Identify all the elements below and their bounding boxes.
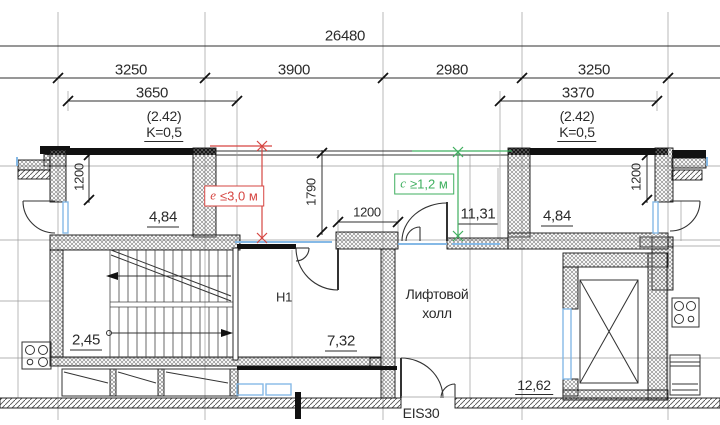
green-note-condition: ≥1,2 м [410, 176, 448, 191]
dim-grid-4-label: 3250 [578, 62, 610, 79]
dim-left-room-width-label: 1200 [72, 163, 87, 191]
dim-grid-1-label: 3250 [115, 62, 147, 79]
room-label-corridor: H1 [276, 290, 292, 305]
radiator [266, 384, 291, 395]
radiator [237, 384, 263, 395]
area-right-balcony: 4,84 [541, 208, 573, 225]
area-corridor: 7,32 [325, 333, 357, 350]
walls [0, 146, 720, 419]
green-note-box: c≥1,2 м [394, 174, 454, 195]
dim-mid-pier-label: 1200 [353, 205, 381, 220]
area-stairs: 2,45 [70, 332, 102, 349]
dim-left-parapet-label: 3650 [136, 85, 168, 102]
coefficient-left-value: (2.42) [147, 108, 182, 124]
door-rating-label: EIS30 [403, 405, 440, 421]
area-terrace: 11,31 [459, 206, 498, 223]
red-note-variable: e [210, 188, 216, 204]
stove-icon-left [22, 342, 51, 369]
dim-right-room-width-label: 1200 [629, 163, 644, 191]
dim-grid-2-label: 3900 [278, 62, 310, 79]
room-label-lift-lobby-2: холл [422, 305, 451, 321]
area-left-balcony: 4,84 [147, 209, 179, 226]
dim-right-parapet-label: 3370 [562, 85, 594, 102]
dim-total-label: 26480 [325, 28, 365, 45]
stove-icon-right [672, 298, 699, 327]
red-note-condition: ≤3,0 м [220, 188, 258, 203]
red-note-box: e≤3,0 м [204, 186, 264, 207]
staircase [106, 250, 233, 357]
coefficient-right-k: K=0,5 [557, 124, 596, 140]
floor-plan-stage: 26480 3250 3900 2980 3250 3650 3370 (2.4… [0, 0, 720, 425]
dim-grid-3-label: 2980 [436, 62, 468, 79]
coefficient-right-value: (2.42) [560, 108, 595, 124]
dim-terrace-depth-label: 1790 [304, 178, 319, 206]
cabinet-icon [670, 355, 700, 395]
room-label-lift-lobby-1: Лифтовой [406, 286, 469, 302]
area-lift-lobby: 12,62 [515, 377, 553, 393]
coefficient-left-k: K=0,5 [144, 124, 183, 140]
green-note-variable: c [400, 176, 406, 192]
elevator-shaft [580, 280, 638, 383]
